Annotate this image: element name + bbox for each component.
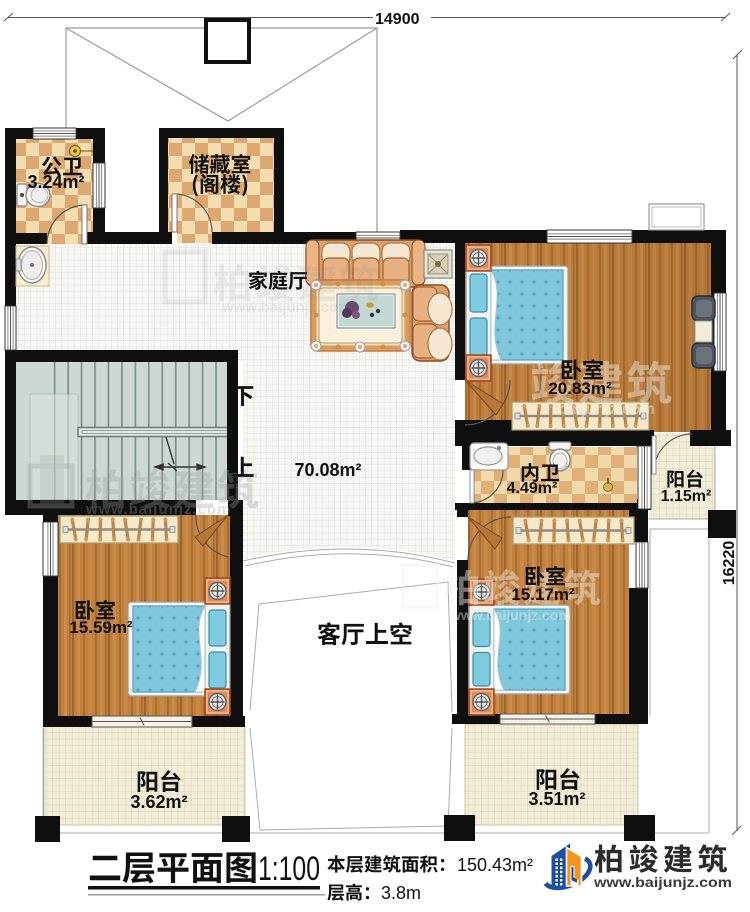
svg-text:www.baijunjz.com: www.baijunjz.com <box>593 874 732 890</box>
svg-text:14900: 14900 <box>375 11 420 28</box>
svg-text:15.59m²: 15.59m² <box>69 618 133 637</box>
svg-text:3.51m²: 3.51m² <box>528 789 585 809</box>
svg-text:1:100: 1:100 <box>258 850 320 888</box>
svg-text:www.baijunjz.com: www.baijunjz.com <box>449 607 571 623</box>
svg-text:1.15m²: 1.15m² <box>661 488 712 505</box>
svg-text:15.17m²: 15.17m² <box>511 585 575 604</box>
svg-text:baijunjz.com: baijunjz.com <box>558 401 655 418</box>
svg-text:70.08m²: 70.08m² <box>294 460 361 480</box>
svg-text:4.49m²: 4.49m² <box>507 480 558 497</box>
svg-text:16220: 16220 <box>721 541 738 586</box>
svg-text:150.43m²: 150.43m² <box>457 855 533 875</box>
svg-text:www.baijunjz.com: www.baijunjz.com <box>85 501 231 518</box>
svg-text:3.62m²: 3.62m² <box>130 792 187 812</box>
svg-text:www.baijunjz.com: www.baijunjz.com <box>221 299 351 316</box>
svg-text:20.83m²: 20.83m² <box>548 379 612 398</box>
svg-text:3.8m: 3.8m <box>381 883 421 903</box>
svg-text:3.24m²: 3.24m² <box>27 172 84 192</box>
